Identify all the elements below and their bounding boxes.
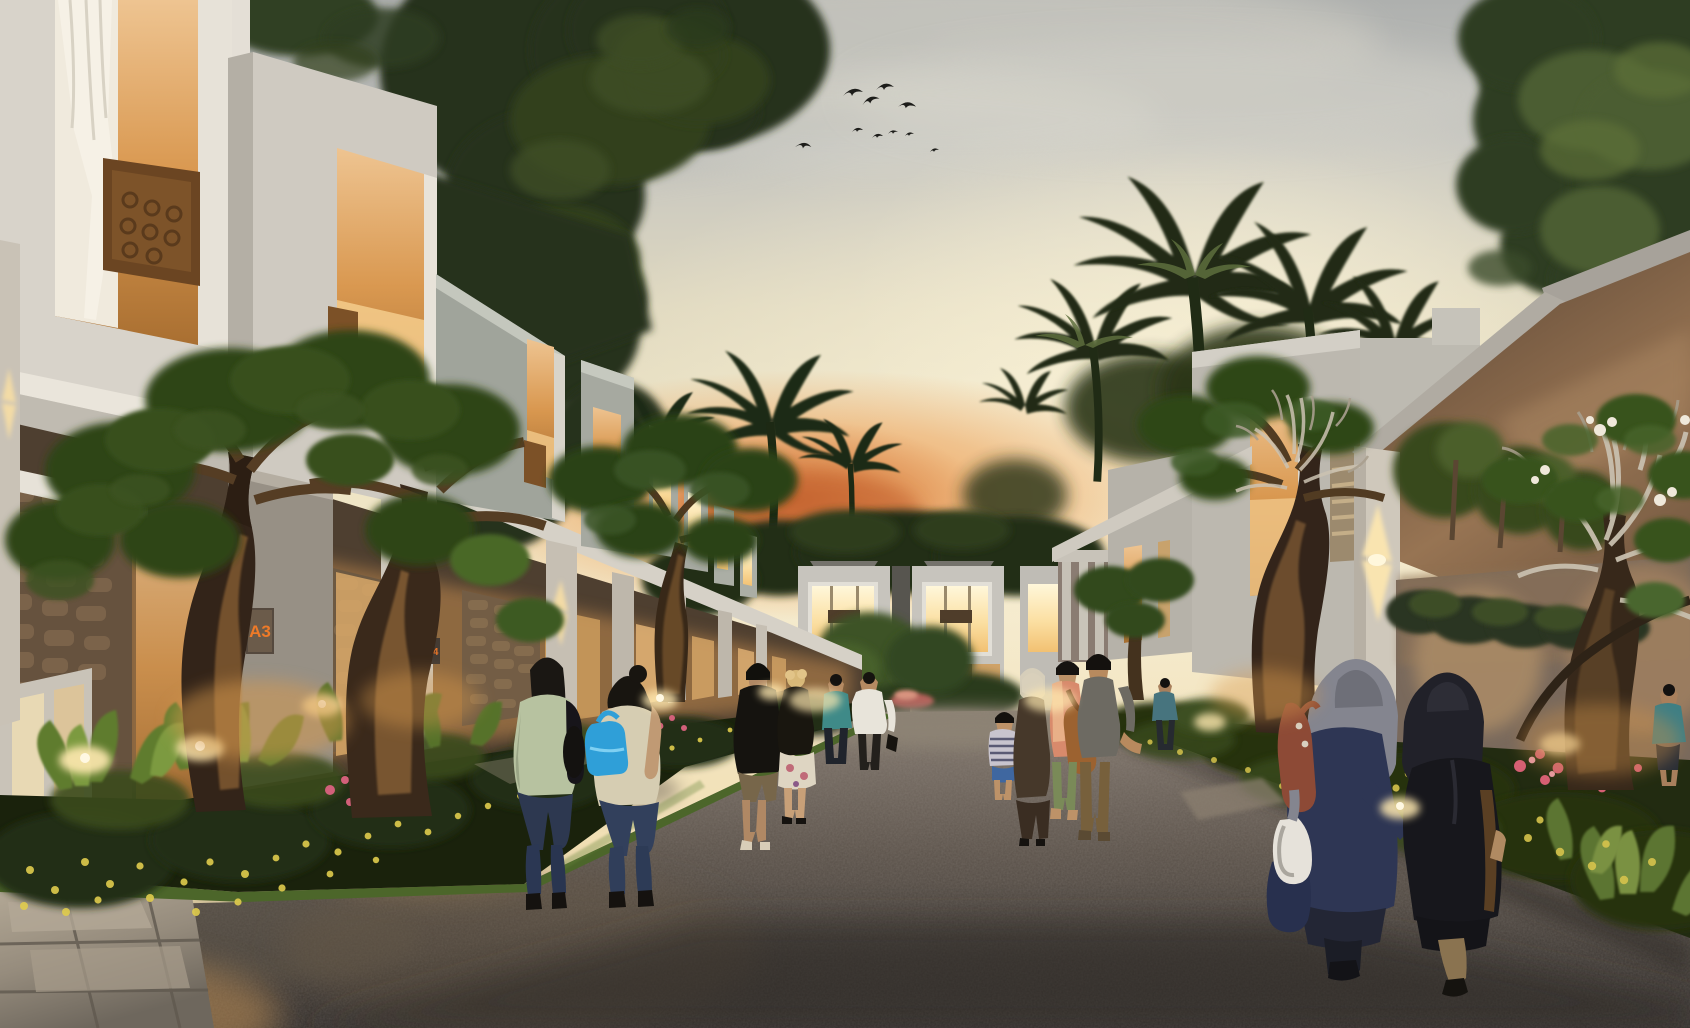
svg-text:A3: A3 — [249, 622, 271, 641]
